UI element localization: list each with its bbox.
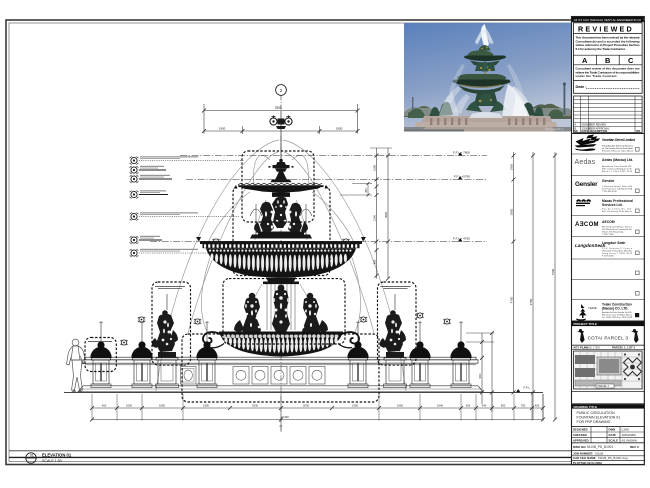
svg-text:900: 900 <box>372 259 376 264</box>
svg-text:DATE: DATE <box>582 129 589 133</box>
svg-text:©Fotosearch.z: ©Fotosearch.z <box>545 127 564 131</box>
svg-text:DESCRIPTION: DESCRIPTION <box>590 129 608 133</box>
svg-text:under the Trade Contract.: under the Trade Contract. <box>576 74 618 78</box>
svg-text:F.F.L + 4750: F.F.L + 4750 <box>453 236 470 240</box>
svg-text:2140: 2140 <box>372 215 376 221</box>
svg-text:600: 600 <box>466 404 471 408</box>
svg-text:REV 0: REV 0 <box>630 445 639 449</box>
svg-text:2030: 2030 <box>252 404 258 408</box>
svg-text:900: 900 <box>478 373 482 378</box>
svg-text:PARCEL 1, LOT 2: PARCEL 1, LOT 2 <box>612 346 635 350</box>
svg-text:NO: NO <box>574 129 578 133</box>
svg-text:T 415.433.3700: T 415.433.3700 <box>602 191 617 193</box>
svg-text:900: 900 <box>501 404 506 408</box>
svg-text:Executive Offices-L2, Taipa, M: Executive Offices-L2, Taipa, Macau <box>602 150 634 153</box>
svg-text:INT: INT <box>636 129 641 133</box>
svg-text:F.F.L + 7600: F.F.L + 7600 <box>453 150 470 154</box>
svg-text:4750: 4750 <box>529 298 533 305</box>
svg-text:01: 01 <box>30 454 34 458</box>
svg-text:COTAI PARCEL 3: COTAI PARCEL 3 <box>588 335 629 340</box>
svg-text:400: 400 <box>102 404 107 408</box>
svg-text:5.4 for action by the Trade Co: 5.4 for action by the Trade Contractor. <box>576 47 626 51</box>
svg-text:Aedas: Aedas <box>575 159 596 166</box>
svg-text:5110B_PD_B1001.dwg: 5110B_PD_B1001.dwg <box>598 456 628 460</box>
svg-text:FOR FRP DRAWING: FOR FRP DRAWING <box>577 420 611 424</box>
svg-text:F.F.L: F.F.L <box>523 386 530 390</box>
svg-text:PUBLIC CIRCULATION: PUBLIC CIRCULATION <box>577 411 615 415</box>
svg-text:B: B <box>605 56 610 65</box>
svg-text:1650: 1650 <box>397 404 403 408</box>
svg-text:Langdon Seah: Langdon Seah <box>602 241 625 245</box>
svg-text:3000: 3000 <box>384 212 388 218</box>
svg-text:CJHO: CJHO <box>622 428 630 432</box>
svg-text:AƎCOM: AƎCOM <box>575 222 599 228</box>
svg-text:A: A <box>575 123 577 127</box>
svg-text:SCALE: SCALE <box>609 438 619 442</box>
svg-text:7800: 7800 <box>274 106 281 110</box>
svg-text:CHECKED: CHECKED <box>573 433 587 437</box>
svg-text:CL: CL <box>279 424 283 428</box>
svg-text:C: C <box>628 56 634 65</box>
svg-text:5110B_PD_B1001: 5110B_PD_B1001 <box>587 445 613 449</box>
svg-text:ELEVATION 01: ELEVATION 01 <box>42 453 72 458</box>
svg-text:24 ST CAC (MACAU) VENT AL ENGI: 24 ST CAC (MACAU) VENT AL ENGINEER B CO <box>574 18 642 22</box>
svg-text:FOUNTAIN ELEVATION 01: FOUNTAIN ELEVATION 01 <box>577 415 621 419</box>
svg-text:Aedas (Macau) Ltd.: Aedas (Macau) Ltd. <box>602 158 633 162</box>
svg-text:REVIEWED: REVIEWED <box>578 25 634 34</box>
svg-text:LangdonSeah: LangdonSeah <box>575 243 606 248</box>
svg-text:PROJECT TITLE: PROJECT TITLE <box>574 322 597 326</box>
svg-text:1650: 1650 <box>159 404 165 408</box>
svg-text:T 2317 1600: T 2317 1600 <box>602 234 614 236</box>
svg-text:(Macau) CO. LTD.: (Macau) CO. LTD. <box>602 306 628 310</box>
svg-text:1640: 1640 <box>437 404 443 408</box>
svg-text:450: 450 <box>535 404 540 408</box>
svg-text:SCALE 1:7500: SCALE 1:7500 <box>584 347 600 350</box>
svg-text:450: 450 <box>364 188 368 193</box>
svg-text:DATE: DATE <box>609 433 617 437</box>
svg-text:F.F.L +5750: F.F.L +5750 <box>454 174 470 178</box>
svg-text:2850: 2850 <box>509 208 513 215</box>
svg-text:1000: 1000 <box>126 404 132 408</box>
svg-text:1060: 1060 <box>372 165 376 171</box>
svg-text:-: - <box>598 428 599 432</box>
svg-text:-: - <box>598 433 599 437</box>
svg-text:Services Ltd.: Services Ltd. <box>602 203 623 207</box>
svg-text:SCALE 1:50: SCALE 1:50 <box>42 459 62 463</box>
svg-text:5110B: 5110B <box>595 451 603 455</box>
svg-text:750: 750 <box>521 404 526 408</box>
svg-text:CAD FILE NAME: CAD FILE NAME <box>573 456 596 460</box>
svg-text:1950: 1950 <box>219 127 226 131</box>
svg-text:Macau T +853 2833 1133: Macau T +853 2833 1133 <box>602 171 633 173</box>
svg-text:-: - <box>598 438 599 442</box>
svg-text:Date :: Date : <box>576 84 587 89</box>
svg-text:FOR REVIEW: FOR REVIEW <box>590 123 607 127</box>
svg-text:4750: 4750 <box>509 296 513 303</box>
svg-text:PLOTTED 09 04 2009: PLOTTED 09 04 2009 <box>573 461 602 465</box>
svg-text:7600: 7600 <box>551 268 555 275</box>
svg-text:Venetian Orient Limited: Venetian Orient Limited <box>602 138 635 142</box>
svg-text:1900: 1900 <box>203 404 209 408</box>
svg-text:APPROVED: APPROVED <box>573 438 589 442</box>
svg-text:640: 640 <box>482 404 487 408</box>
svg-text:2030: 2030 <box>303 404 309 408</box>
svg-text:DWN: DWN <box>609 428 616 432</box>
svg-text:Gensler: Gensler <box>602 179 615 183</box>
svg-text:JOB NUMBER: JOB NUMBER <box>573 451 593 455</box>
svg-text:AECOM: AECOM <box>602 220 615 224</box>
svg-text:17400: 17400 <box>281 415 289 419</box>
svg-text:YEAKE: YEAKE <box>588 306 597 310</box>
svg-text:1950: 1950 <box>336 127 343 131</box>
svg-text:DWG NO: DWG NO <box>573 445 586 449</box>
svg-text:Tel: 2835 6328 Fax: 2835 6318: Tel: 2835 6328 Fax: 2835 6318 <box>602 317 633 319</box>
svg-text:Gensler: Gensler <box>575 181 598 188</box>
svg-text:AS SHOWN: AS SHOWN <box>622 438 637 442</box>
svg-text:F 2576 0416: F 2576 0416 <box>602 256 615 258</box>
svg-text:Edf. Vai Keong 14-A, Macau: Edf. Vai Keong 14-A, Macau <box>602 210 633 213</box>
svg-text:A: A <box>582 56 588 65</box>
svg-text:10/04/2009: 10/04/2009 <box>622 433 636 437</box>
svg-text:2: 2 <box>280 88 283 93</box>
svg-text:1900: 1900 <box>352 404 358 408</box>
svg-text:DESIGNED: DESIGNED <box>573 428 588 432</box>
svg-text:PARCEL 3: PARCEL 3 <box>598 385 610 388</box>
svg-text:1850: 1850 <box>509 163 513 170</box>
svg-text:DRAWING TITLE: DRAWING TITLE <box>574 405 598 409</box>
